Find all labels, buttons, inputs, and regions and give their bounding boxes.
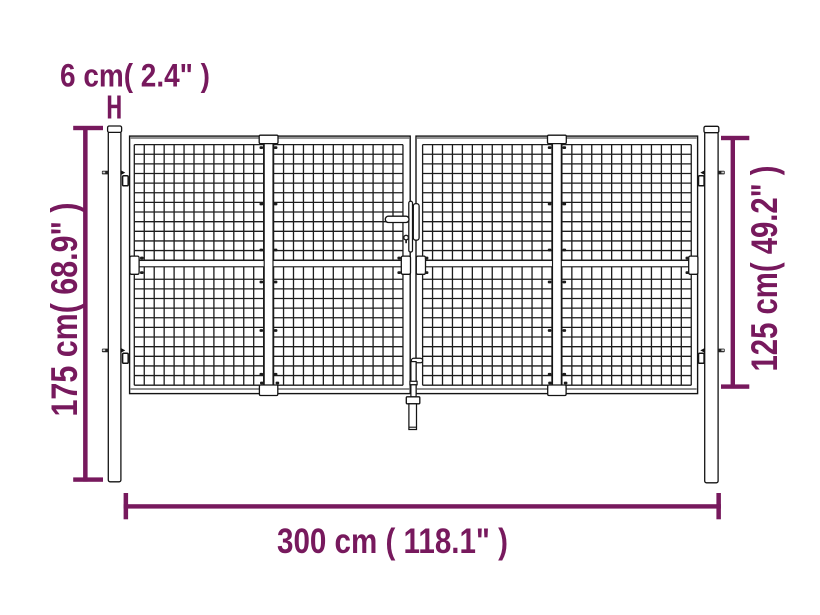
svg-text:300 cm ( 118.1" ): 300 cm ( 118.1" ) <box>277 521 508 561</box>
svg-text:6 cm( 2.4" ): 6 cm( 2.4" ) <box>60 58 210 94</box>
svg-text:125 cm( 49.2" ): 125 cm( 49.2" ) <box>744 166 785 372</box>
svg-text:175 cm( 68.9" ): 175 cm( 68.9" ) <box>44 203 85 417</box>
